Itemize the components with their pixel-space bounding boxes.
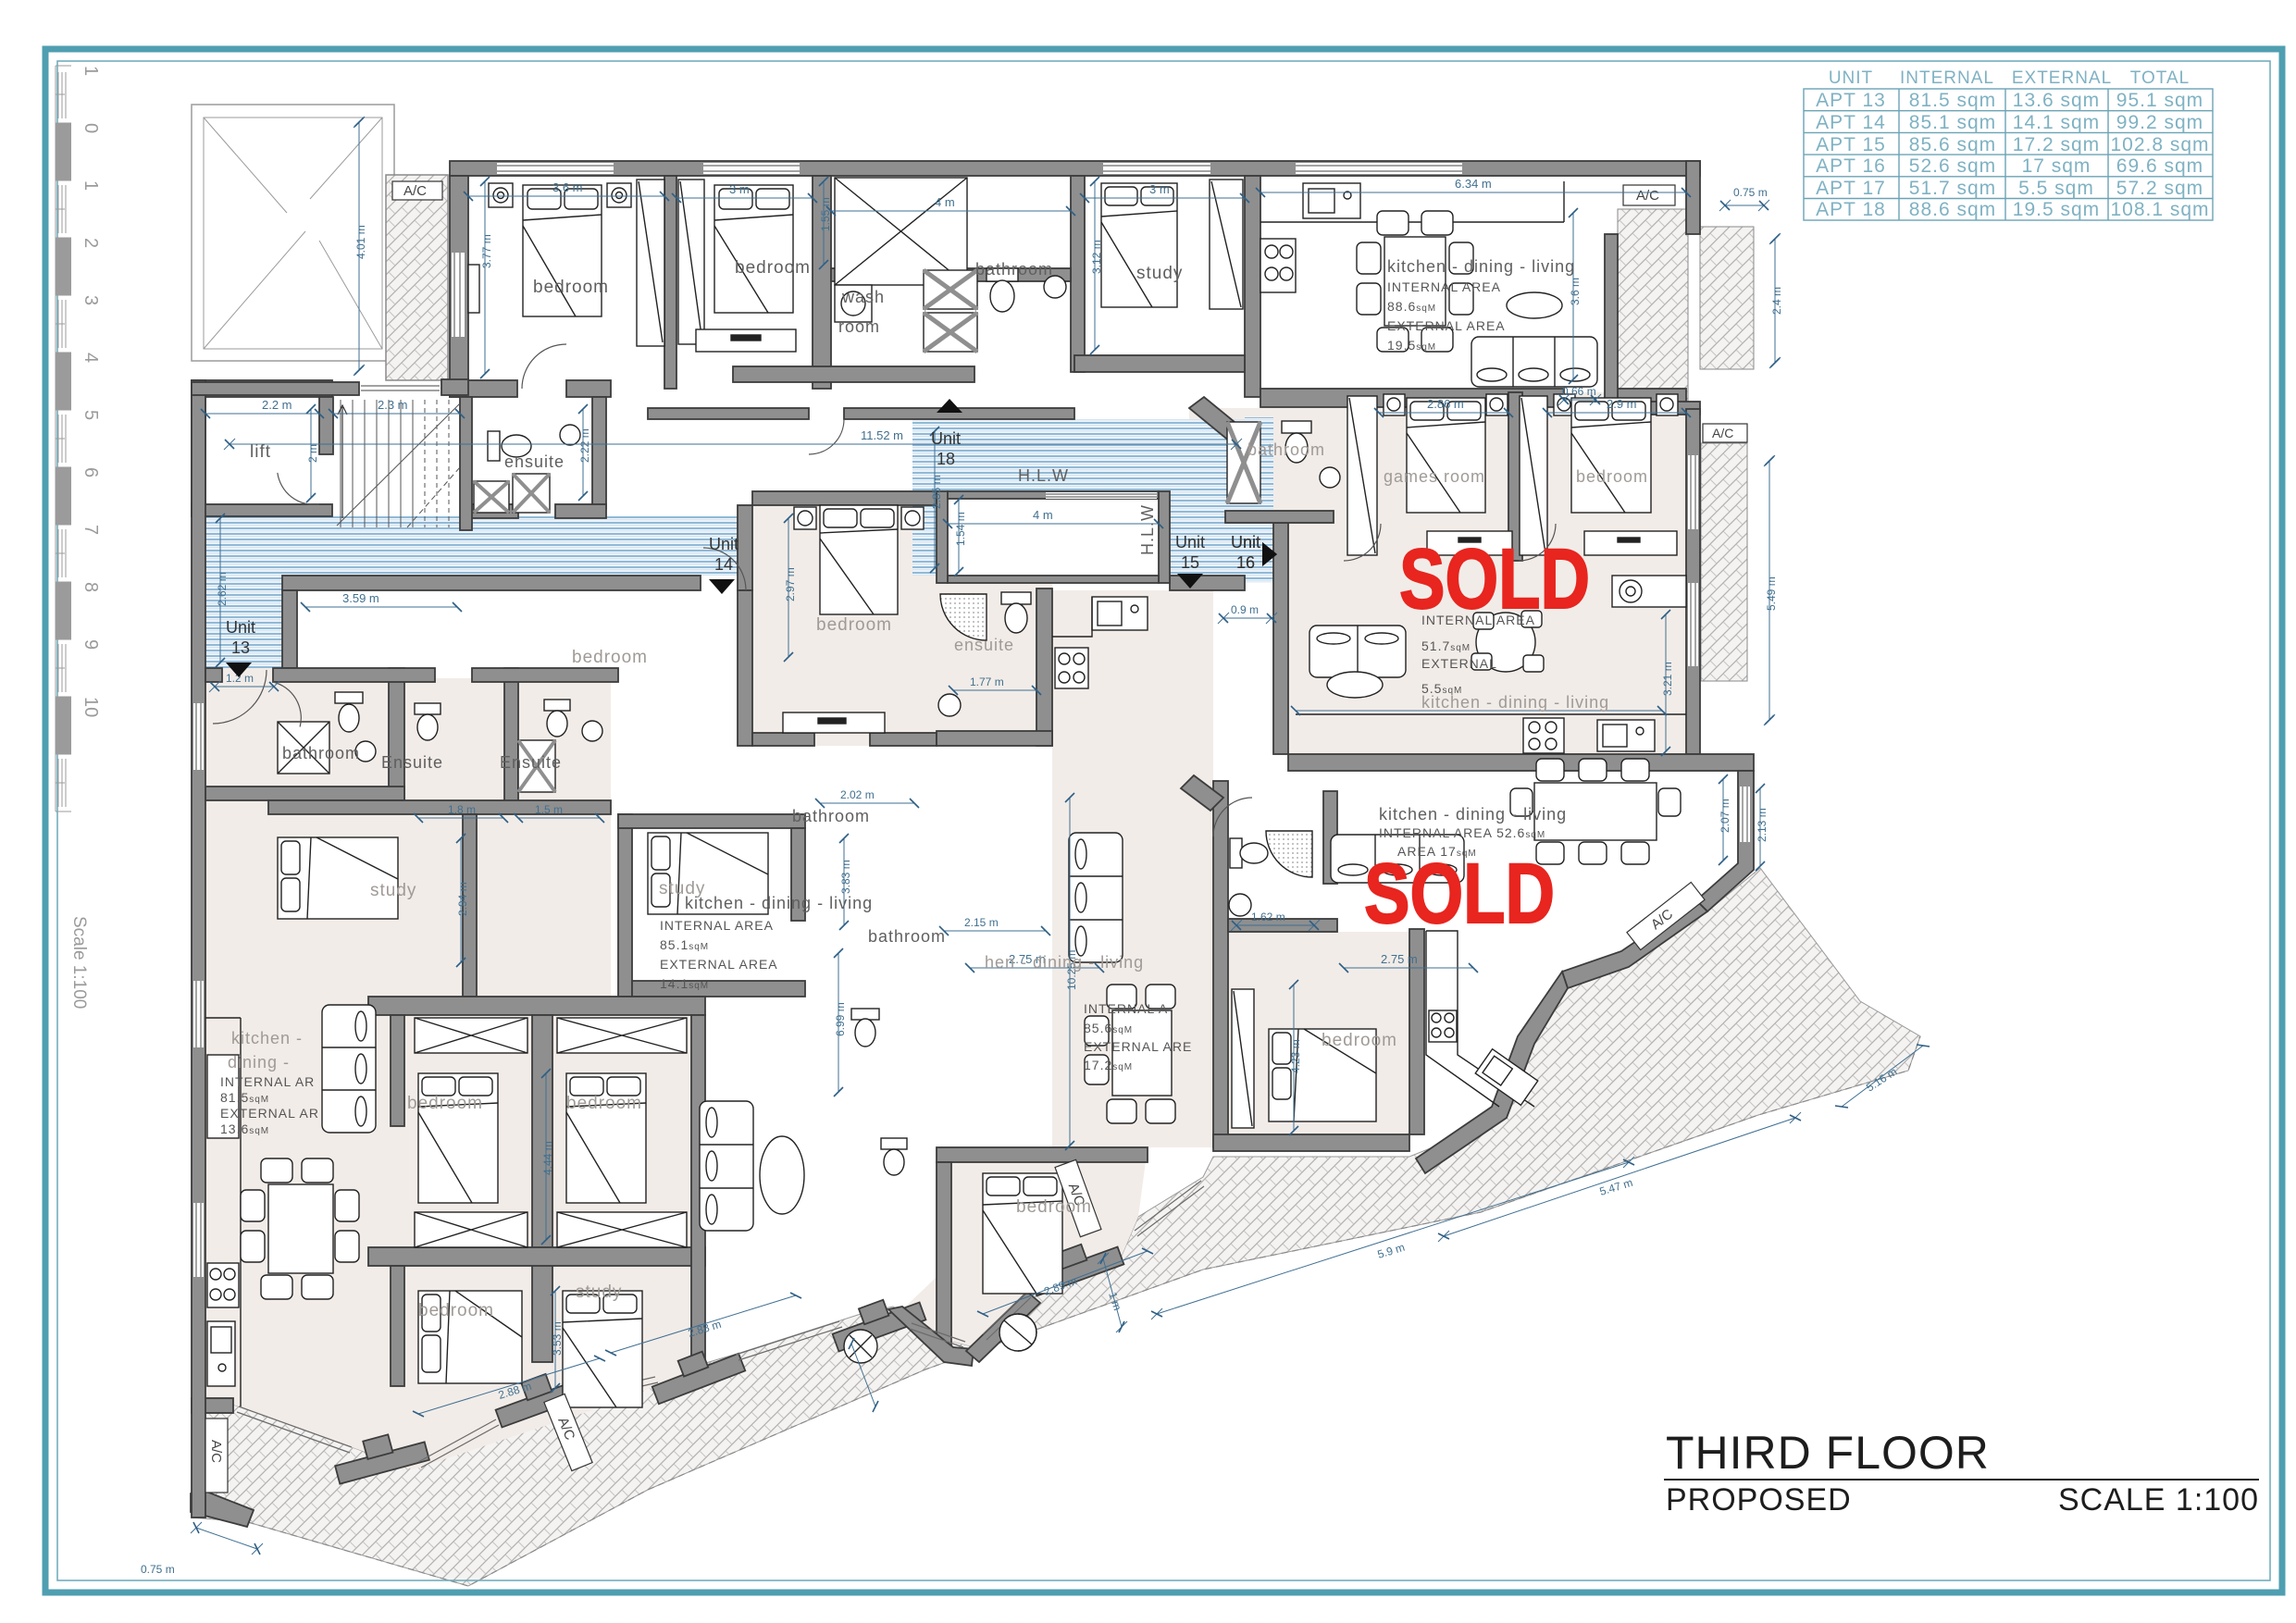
svg-text:3.6 m: 3.6 m: [1569, 278, 1582, 305]
svg-text:EXTERNAL AREA: EXTERNAL AREA: [660, 957, 778, 972]
svg-text:1: 1: [81, 180, 101, 191]
svg-text:TOTAL: TOTAL: [2130, 68, 2190, 88]
svg-text:3 m: 3 m: [1149, 182, 1170, 196]
svg-text:APT 14: APT 14: [1816, 112, 1886, 133]
svg-text:Scale 1:100: Scale 1:100: [69, 916, 89, 1009]
svg-text:5.5 sqm: 5.5 sqm: [2018, 178, 2094, 199]
svg-text:bedroom: bedroom: [572, 648, 648, 667]
svg-text:wash: wash: [841, 288, 885, 306]
svg-text:1.62 m: 1.62 m: [1251, 911, 1285, 923]
svg-text:0.75 m: 0.75 m: [141, 1563, 175, 1576]
svg-text:2.9 m: 2.9 m: [1607, 397, 1637, 411]
svg-text:1.55 m: 1.55 m: [819, 197, 832, 231]
svg-text:6.34 m: 6.34 m: [1455, 177, 1492, 191]
svg-text:kitchen - dining - living: kitchen - dining - living: [1387, 257, 1575, 276]
svg-text:bathroom: bathroom: [1247, 440, 1325, 459]
svg-text:11.52 m: 11.52 m: [861, 428, 903, 442]
svg-text:3 m: 3 m: [729, 182, 750, 196]
svg-text:81.5 sqm: 81.5 sqm: [1909, 90, 1996, 111]
svg-text:Unit: Unit: [709, 535, 738, 553]
svg-text:bedroom: bedroom: [1322, 1031, 1397, 1050]
svg-text:bedroom: bedroom: [418, 1301, 494, 1320]
svg-text:4 m: 4 m: [935, 195, 955, 209]
svg-text:19.5 sqm: 19.5 sqm: [2013, 199, 2100, 220]
svg-text:15: 15: [1181, 553, 1199, 572]
svg-text:13.6 sqm: 13.6 sqm: [2013, 90, 2100, 111]
svg-text:17 sqm: 17 sqm: [2022, 155, 2091, 177]
svg-text:3.6 m: 3.6 m: [552, 180, 583, 194]
svg-text:hen - dining - living: hen - dining - living: [985, 953, 1144, 972]
svg-text:0.66 m: 0.66 m: [1562, 385, 1596, 398]
svg-text:THIRD FLOOR: THIRD FLOOR: [1666, 1427, 1990, 1479]
svg-text:bedroom: bedroom: [533, 278, 609, 297]
svg-text:17.2 sqm: 17.2 sqm: [2013, 134, 2100, 155]
svg-text:2.75 m: 2.75 m: [1381, 952, 1418, 966]
svg-text:EXTERNAL AR: EXTERNAL AR: [220, 1106, 319, 1121]
svg-text:PROPOSED: PROPOSED: [1666, 1482, 1852, 1518]
svg-text:UNIT: UNIT: [1829, 68, 1873, 88]
svg-text:Ensuite: Ensuite: [381, 753, 443, 772]
svg-text:85.6 sqm: 85.6 sqm: [1909, 134, 1996, 155]
svg-text:bedroom: bedroom: [407, 1094, 483, 1113]
svg-text:Unit: Unit: [1175, 533, 1205, 551]
svg-text:3.59 m: 3.59 m: [342, 591, 379, 605]
svg-text:bathroom: bathroom: [792, 807, 870, 825]
svg-text:57.2 sqm: 57.2 sqm: [2116, 178, 2203, 199]
svg-text:bedroom: bedroom: [566, 1094, 642, 1113]
svg-text:APT 18: APT 18: [1816, 199, 1886, 220]
svg-text:dining -: dining -: [228, 1053, 290, 1072]
svg-text:5: 5: [81, 410, 101, 420]
svg-text:kitchen - dining - living: kitchen - dining - living: [1421, 693, 1609, 712]
svg-text:85.1 sqm: 85.1 sqm: [1909, 112, 1996, 133]
svg-text:bedroom: bedroom: [735, 258, 811, 278]
svg-text:2.86 m: 2.86 m: [1427, 397, 1464, 411]
svg-text:APT 16: APT 16: [1816, 155, 1886, 177]
svg-text:3.21 m: 3.21 m: [1661, 662, 1674, 696]
svg-text:8: 8: [81, 582, 101, 592]
svg-text:INTERNAL AREA 52.6sqM: INTERNAL AREA 52.6sqM: [1379, 825, 1545, 840]
svg-text:3.12 m: 3.12 m: [1090, 240, 1103, 274]
svg-text:ensuite: ensuite: [504, 452, 565, 471]
svg-text:10: 10: [81, 697, 101, 717]
svg-text:102.8 sqm: 102.8 sqm: [2110, 134, 2209, 155]
svg-text:A/C: A/C: [1712, 426, 1733, 440]
svg-text:2.4 m: 2.4 m: [1770, 287, 1783, 315]
svg-text:APT 13: APT 13: [1816, 90, 1886, 111]
svg-text:2.2 m: 2.2 m: [262, 398, 292, 412]
svg-text:2: 2: [81, 238, 101, 248]
svg-text:5.49 m: 5.49 m: [1765, 576, 1778, 611]
svg-text:SOLD: SOLD: [1364, 847, 1555, 941]
svg-text:0.75 m: 0.75 m: [1733, 186, 1768, 199]
svg-text:kitchen -: kitchen -: [231, 1029, 303, 1047]
svg-text:16: 16: [1236, 553, 1255, 572]
svg-text:2.97 m: 2.97 m: [784, 567, 797, 601]
svg-text:APT 15: APT 15: [1816, 134, 1886, 155]
svg-text:INTERNAL: INTERNAL: [1900, 68, 1994, 88]
svg-text:1.54 m: 1.54 m: [954, 512, 967, 546]
svg-text:2.22 m: 2.22 m: [578, 428, 591, 463]
svg-text:88.6 sqm: 88.6 sqm: [1909, 199, 1996, 220]
svg-text:6.99 m: 6.99 m: [834, 1002, 847, 1036]
svg-text:SOLD: SOLD: [1399, 532, 1590, 626]
svg-text:Unit: Unit: [1231, 533, 1260, 551]
svg-text:14: 14: [714, 555, 733, 574]
svg-text:kitchen - dining - living: kitchen - dining - living: [1379, 805, 1567, 824]
svg-text:3.53 m: 3.53 m: [551, 1321, 564, 1356]
svg-text:1.77 m: 1.77 m: [970, 675, 1004, 688]
svg-text:A/C: A/C: [1636, 188, 1659, 204]
svg-text:EXTERNAL: EXTERNAL: [2012, 68, 2112, 88]
svg-text:bathroom: bathroom: [282, 744, 360, 762]
svg-text:51.7 sqm: 51.7 sqm: [1909, 178, 1996, 199]
svg-text:2.3 m: 2.3 m: [378, 398, 408, 412]
svg-text:0.9 m: 0.9 m: [1231, 603, 1259, 616]
svg-text:INTERNAL AREA: INTERNAL AREA: [1387, 279, 1501, 294]
svg-text:EXTERNAL ARE: EXTERNAL ARE: [1084, 1039, 1192, 1054]
svg-text:7: 7: [81, 525, 101, 535]
svg-text:INTERNAL A: INTERNAL A: [1084, 1001, 1168, 1016]
svg-text:18: 18: [937, 450, 955, 468]
svg-text:4.01 m: 4.01 m: [354, 225, 367, 259]
svg-text:99.2 sqm: 99.2 sqm: [2116, 112, 2203, 133]
svg-text:2.62 m: 2.62 m: [216, 572, 229, 606]
svg-text:H.L.W: H.L.W: [1018, 466, 1069, 485]
svg-text:Ensuite: Ensuite: [500, 753, 562, 772]
svg-text:bedroom: bedroom: [816, 615, 892, 635]
svg-text:H.L.W: H.L.W: [1138, 504, 1157, 555]
svg-text:3.83 m: 3.83 m: [839, 860, 852, 894]
svg-text:A/C: A/C: [403, 183, 427, 199]
svg-text:Unit: Unit: [931, 429, 961, 448]
svg-text:study: study: [659, 879, 705, 898]
svg-text:Unit: Unit: [226, 618, 255, 637]
svg-text:4: 4: [81, 353, 101, 363]
svg-text:1.8 m: 1.8 m: [448, 803, 476, 816]
svg-text:2.02 m: 2.02 m: [840, 788, 875, 801]
svg-text:bathroom: bathroom: [868, 927, 946, 946]
svg-text:bathroom: bathroom: [975, 260, 1053, 279]
svg-text:13: 13: [231, 638, 250, 657]
svg-text:bedroom: bedroom: [1016, 1197, 1092, 1217]
svg-text:1.5 m: 1.5 m: [535, 803, 563, 816]
svg-text:2.07 m: 2.07 m: [1719, 799, 1731, 833]
svg-text:INTERNAL AR: INTERNAL AR: [220, 1074, 315, 1089]
svg-text:room: room: [838, 317, 880, 336]
svg-text:kitchen - dining - living: kitchen - dining - living: [685, 894, 873, 912]
svg-text:3: 3: [81, 295, 101, 305]
svg-text:study: study: [576, 1282, 622, 1302]
svg-text:2.15 m: 2.15 m: [964, 916, 999, 929]
svg-text:108.1 sqm: 108.1 sqm: [2110, 199, 2209, 220]
svg-text:study: study: [1136, 264, 1183, 283]
svg-text:9: 9: [81, 639, 101, 650]
svg-text:0: 0: [81, 123, 101, 133]
svg-text:2 m: 2 m: [306, 444, 319, 463]
svg-text:69.6 sqm: 69.6 sqm: [2116, 155, 2203, 177]
svg-text:2.85 m: 2.85 m: [930, 475, 943, 509]
svg-text:3.77 m: 3.77 m: [480, 234, 493, 268]
svg-text:2.94 m: 2.94 m: [456, 882, 469, 916]
svg-text:4 m: 4 m: [1033, 508, 1053, 522]
svg-text:2.13 m: 2.13 m: [1756, 808, 1769, 842]
svg-text:APT 17: APT 17: [1816, 178, 1886, 199]
svg-text:ensuite: ensuite: [954, 636, 1014, 654]
svg-text:52.6 sqm: 52.6 sqm: [1909, 155, 1996, 177]
svg-text:1: 1: [81, 66, 101, 76]
svg-text:SCALE 1:100: SCALE 1:100: [2058, 1482, 2259, 1518]
svg-text:14.1 sqm: 14.1 sqm: [2013, 112, 2100, 133]
svg-text:4.23 m: 4.23 m: [1289, 1039, 1302, 1073]
svg-text:A/C: A/C: [208, 1440, 224, 1463]
svg-text:EXTERNAL AREA: EXTERNAL AREA: [1387, 318, 1506, 333]
svg-text:INTERNAL AREA: INTERNAL AREA: [660, 918, 774, 933]
svg-text:games room: games room: [1384, 467, 1485, 486]
svg-text:4.44 m: 4.44 m: [541, 1141, 554, 1175]
svg-text:lift: lift: [250, 442, 271, 462]
svg-text:study: study: [370, 881, 416, 900]
svg-text:EXTERNAL: EXTERNAL: [1421, 656, 1497, 671]
svg-text:95.1 sqm: 95.1 sqm: [2116, 90, 2203, 111]
svg-text:bedroom: bedroom: [1576, 467, 1648, 486]
svg-text:6: 6: [81, 467, 101, 477]
